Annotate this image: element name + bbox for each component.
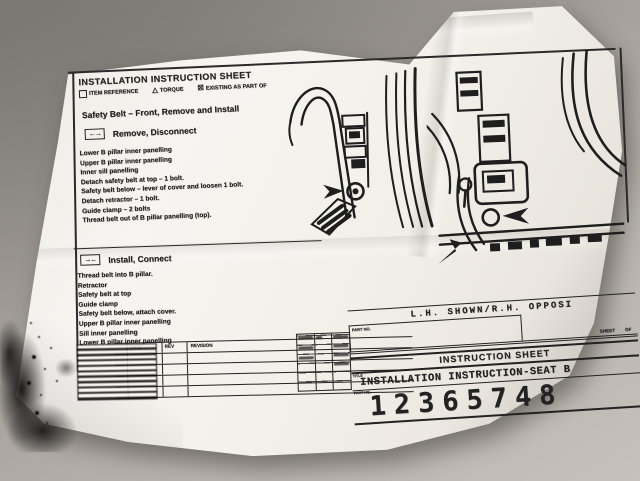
install-steps-list: Thread belt into B pillar. Retractor Saf… <box>77 266 284 348</box>
legend-label: EXISTING AS PART OF <box>206 83 267 92</box>
legend-torque: △ TORQUE <box>152 87 183 94</box>
remove-arrows-icon: ←→ <box>85 128 105 140</box>
sheet-label: SHEET <box>600 328 616 334</box>
install-arrows-icon: →← <box>80 254 100 266</box>
approval-column <box>332 333 351 390</box>
install-section-title: Install, Connect <box>108 253 172 265</box>
install-section-heading: →← Install, Connect <box>80 252 172 266</box>
section-separator-line <box>74 240 322 249</box>
item-reference-box-icon <box>79 90 87 98</box>
revision-header-rev: REV <box>162 342 187 353</box>
sheet-of-labels: SHEET OF <box>521 307 637 340</box>
b-pillar-lower-drawing <box>424 48 631 268</box>
remove-section-title: Remove, Disconnect <box>113 125 197 139</box>
approval-column <box>297 334 317 391</box>
legend-item-reference: ITEM REFERENCE <box>79 88 139 99</box>
approval-column <box>315 334 335 391</box>
legend-existing: ☒ EXISTING AS PART OF <box>197 83 266 92</box>
remove-section-heading: ←→ Remove, Disconnect <box>85 124 197 140</box>
remove-steps-list: Lower B pillar inner panelling Upper B p… <box>79 140 287 226</box>
revision-table: DATE REV REVISION <box>114 336 413 396</box>
legend-label: ITEM REFERENCE <box>89 89 139 97</box>
torque-triangle-icon: △ <box>152 88 158 94</box>
b-pillar-upper-drawing <box>274 63 449 238</box>
smudged-text-block <box>77 343 158 400</box>
of-label: OF <box>625 327 632 332</box>
printed-content: INSTALLATION INSTRUCTION SHEET ITEM REFE… <box>62 47 639 429</box>
legend-label: TORQUE <box>160 87 184 94</box>
existing-checkbox-icon: ☒ <box>197 86 204 92</box>
approval-grid <box>296 332 352 392</box>
photo-of-instruction-sheet: INSTALLATION INSTRUCTION SHEET ITEM REFE… <box>0 0 640 481</box>
subject-line: Safety Belt – Front, Remove and Install <box>82 103 240 120</box>
